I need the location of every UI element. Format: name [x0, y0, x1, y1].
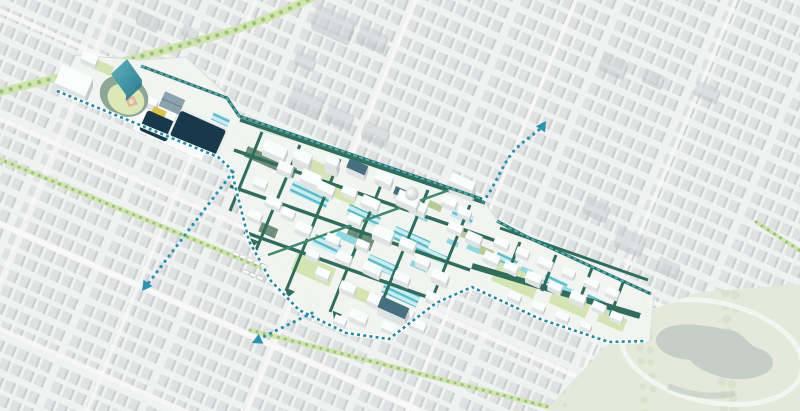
park-tree: [728, 380, 737, 389]
park-tree: [723, 315, 732, 324]
campus-master-plan-scene: [0, 0, 800, 411]
master-plan-stage: [0, 0, 800, 411]
park-tree: [640, 384, 647, 391]
park-tree: [647, 347, 654, 354]
park-tree: [718, 378, 727, 387]
park-tree: [731, 291, 740, 300]
park-tree: [638, 358, 645, 365]
park-tree: [637, 345, 644, 352]
park-tree: [650, 386, 657, 393]
park-tree: [641, 397, 648, 404]
park-tree: [563, 403, 568, 408]
park-tree: [648, 360, 655, 367]
domed-building: [406, 188, 419, 201]
